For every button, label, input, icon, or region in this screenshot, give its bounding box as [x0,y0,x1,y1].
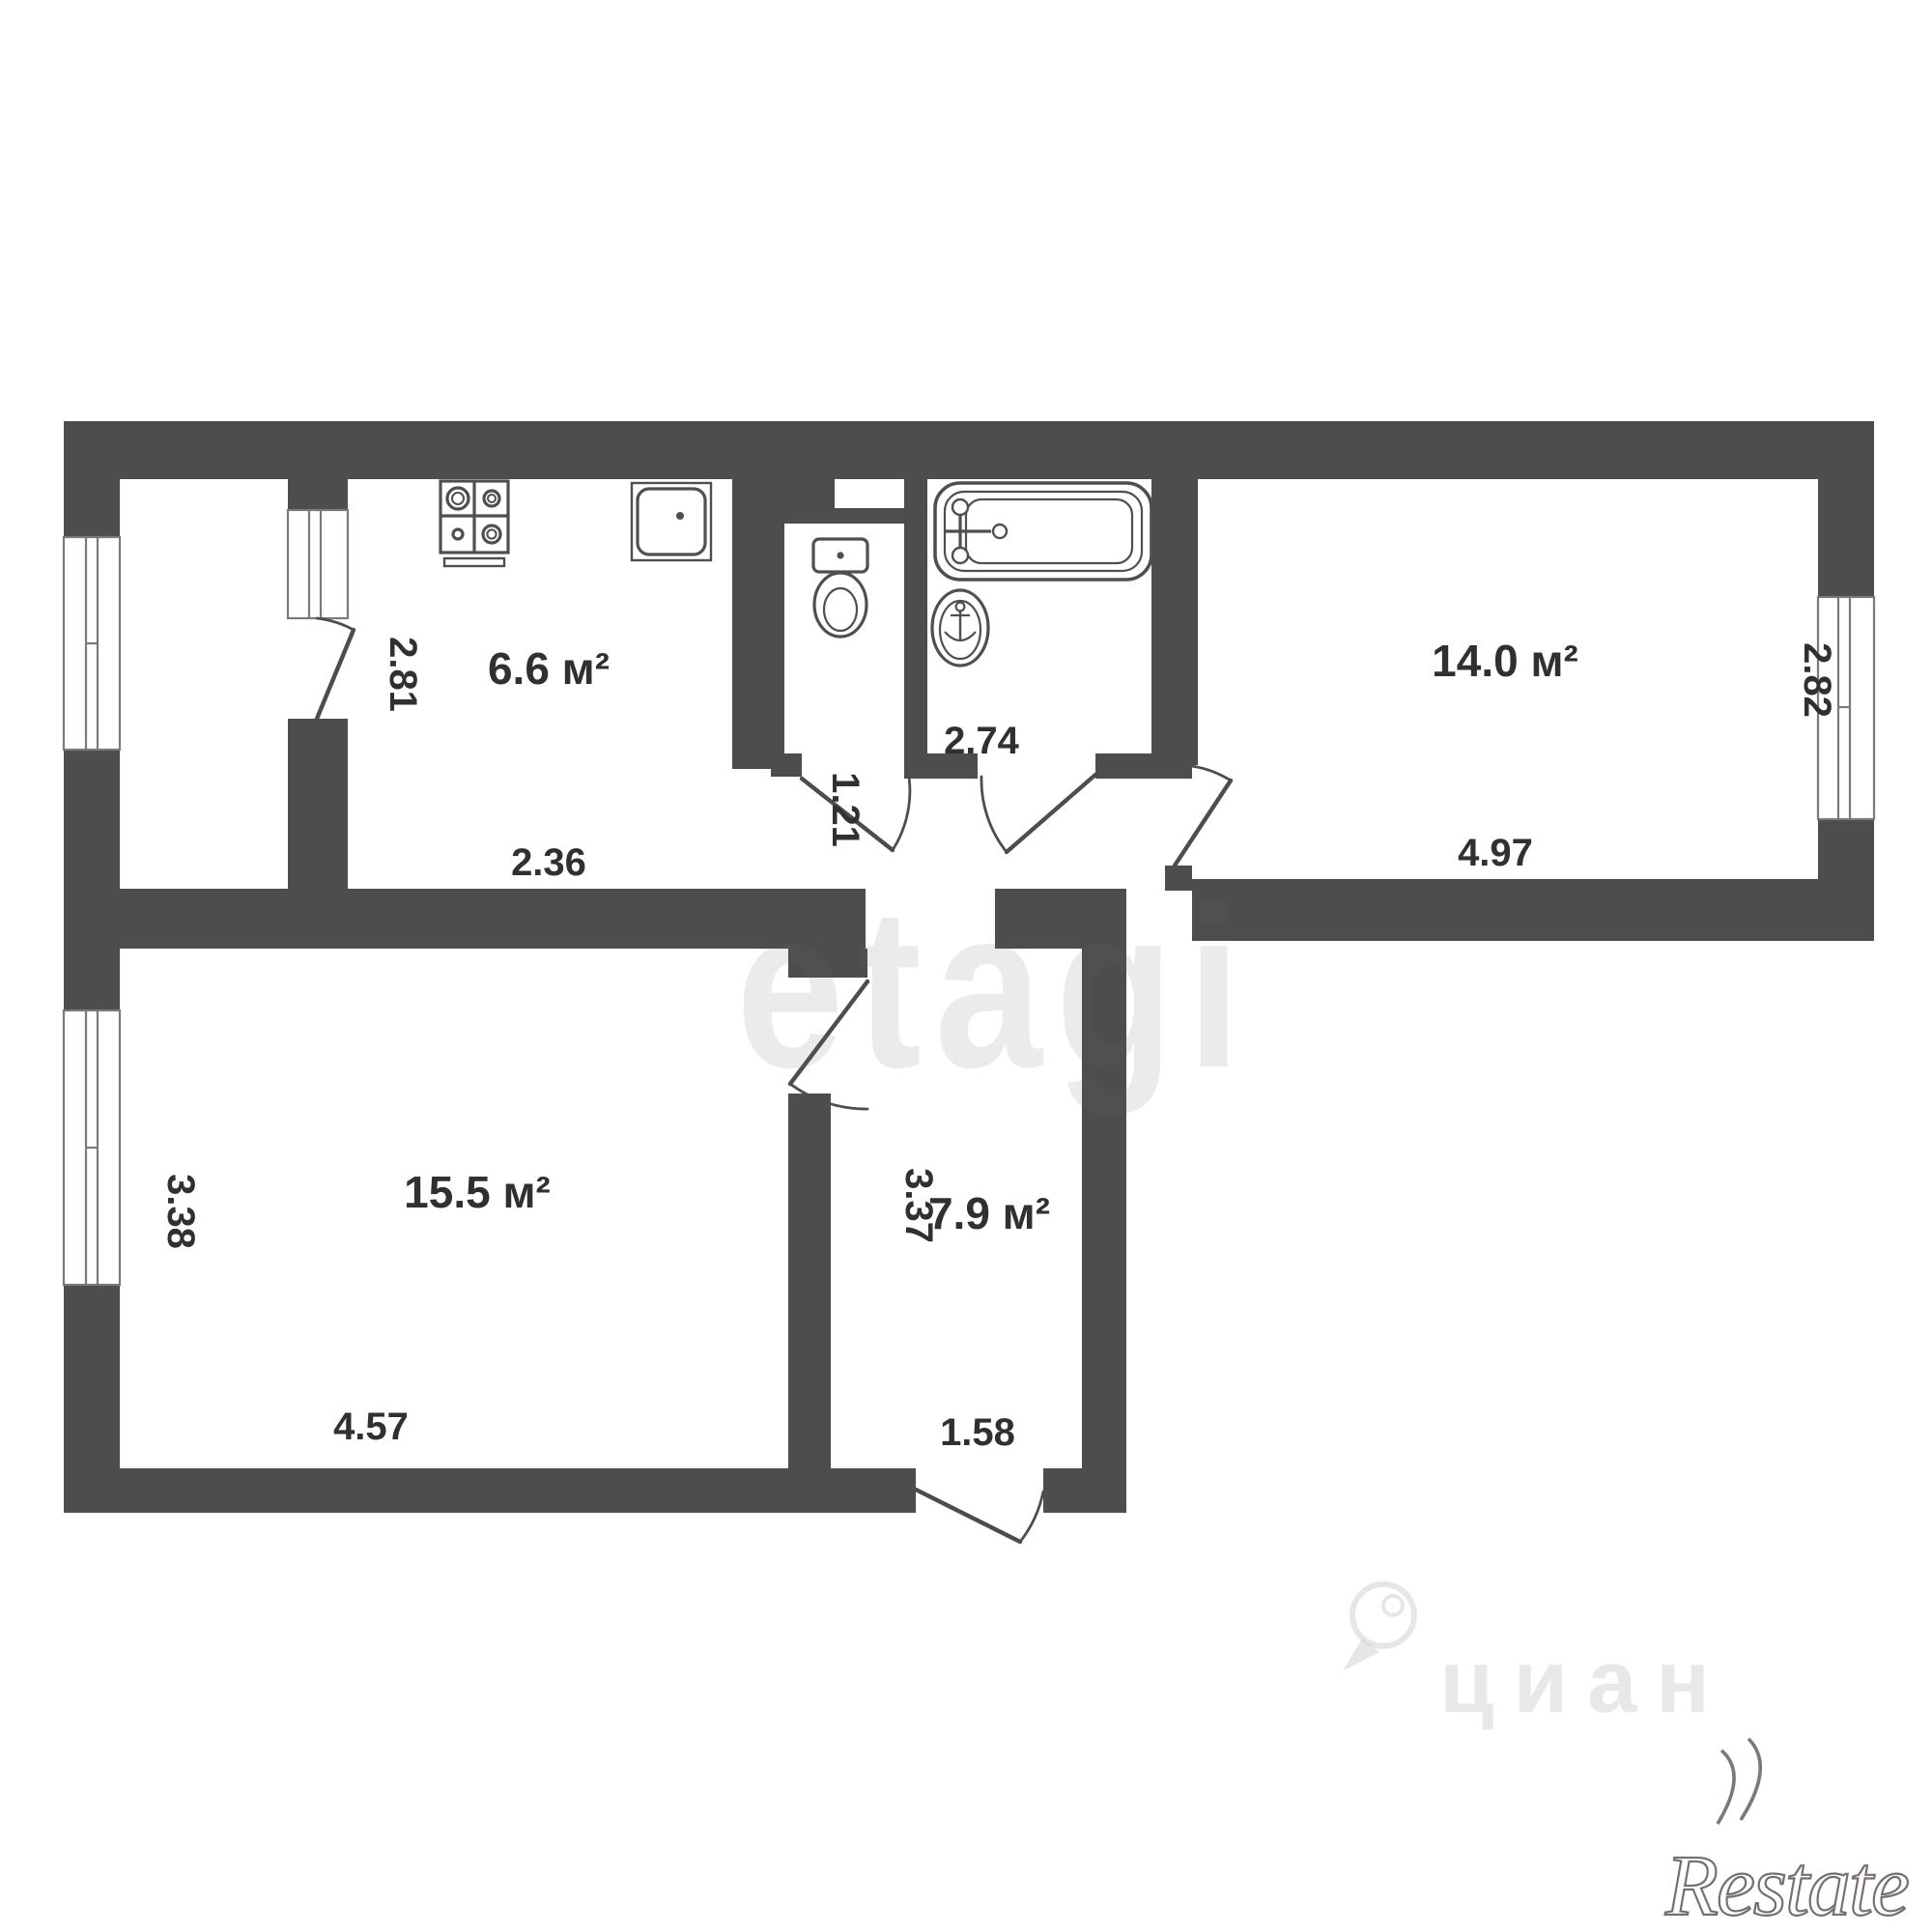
dim-2-36: 2.36 [511,841,586,884]
cian-pin-icon [1343,1584,1414,1671]
wall-band-bedroom [1192,879,1874,941]
door-kitchen [317,618,354,719]
wall-bedroom-left [1151,479,1198,765]
dim-2-81: 2.81 [382,637,424,712]
door-bedroom [1175,765,1231,866]
wall-kitchen-right [732,479,784,769]
wall-left-middle [64,750,120,1010]
wall-right-upper [1818,479,1874,597]
room-label-bedroom: 14.0 м² [1432,636,1578,686]
room-label-hallway: 7.9 м² [928,1188,1050,1238]
wall-vent-lip [784,508,904,524]
floor-plan-image: 6.6 м² 14.0 м² 15.5 м² 7.9 м² 2.81 2.36 … [0,0,1932,1932]
watermark-restate: Restate [1664,1739,1908,1932]
dim-2-74: 2.74 [944,720,1020,762]
door-entrance [916,1490,1043,1542]
floor-plan: 6.6 м² 14.0 м² 15.5 м² 7.9 м² 2.81 2.36 … [0,0,1932,1932]
dim-2-82: 2.82 [1796,642,1838,718]
watermarks: etagi циан Restate [736,862,1908,1932]
wall-top [64,421,1874,479]
restate-swash [1718,1739,1760,1824]
wall-right-lower [1818,819,1874,941]
window-storage-left [64,537,120,750]
dim-3-38: 3.38 [159,1174,202,1249]
room-label-living: 15.5 м² [404,1167,551,1217]
watermark-cian: циан [1343,1584,1729,1731]
dim-1-21: 1.21 [824,772,867,847]
bathtub-icon [935,483,1151,580]
glazed-partition-kitchen [288,510,348,618]
wall-left-upper [64,479,120,537]
door-bathroom [981,775,1095,852]
wash-basin-icon [932,590,988,666]
dim-4-57: 4.57 [333,1406,409,1448]
dim-4-97: 4.97 [1458,832,1533,874]
wall-bottom-left [64,1468,916,1513]
room-label-kitchen: 6.6 м² [488,643,610,694]
wall-hall-partition-bottom [788,1094,831,1468]
stove-icon [440,481,508,566]
wall-storage-partition-top [288,479,348,510]
kitchen-sink-icon [632,483,711,560]
toilet-icon [813,539,867,637]
watermark-restate-text: Restate [1664,1838,1908,1932]
dim-1-58: 1.58 [940,1411,1015,1454]
wall-wc-door-stub [771,753,802,777]
watermark-etagi: etagi [736,862,1254,1116]
dim-3-37: 3.37 [897,1168,940,1243]
window-living-left [64,1010,120,1285]
wall-wc-bath [904,479,927,753]
watermark-cian-text: циан [1439,1633,1729,1731]
